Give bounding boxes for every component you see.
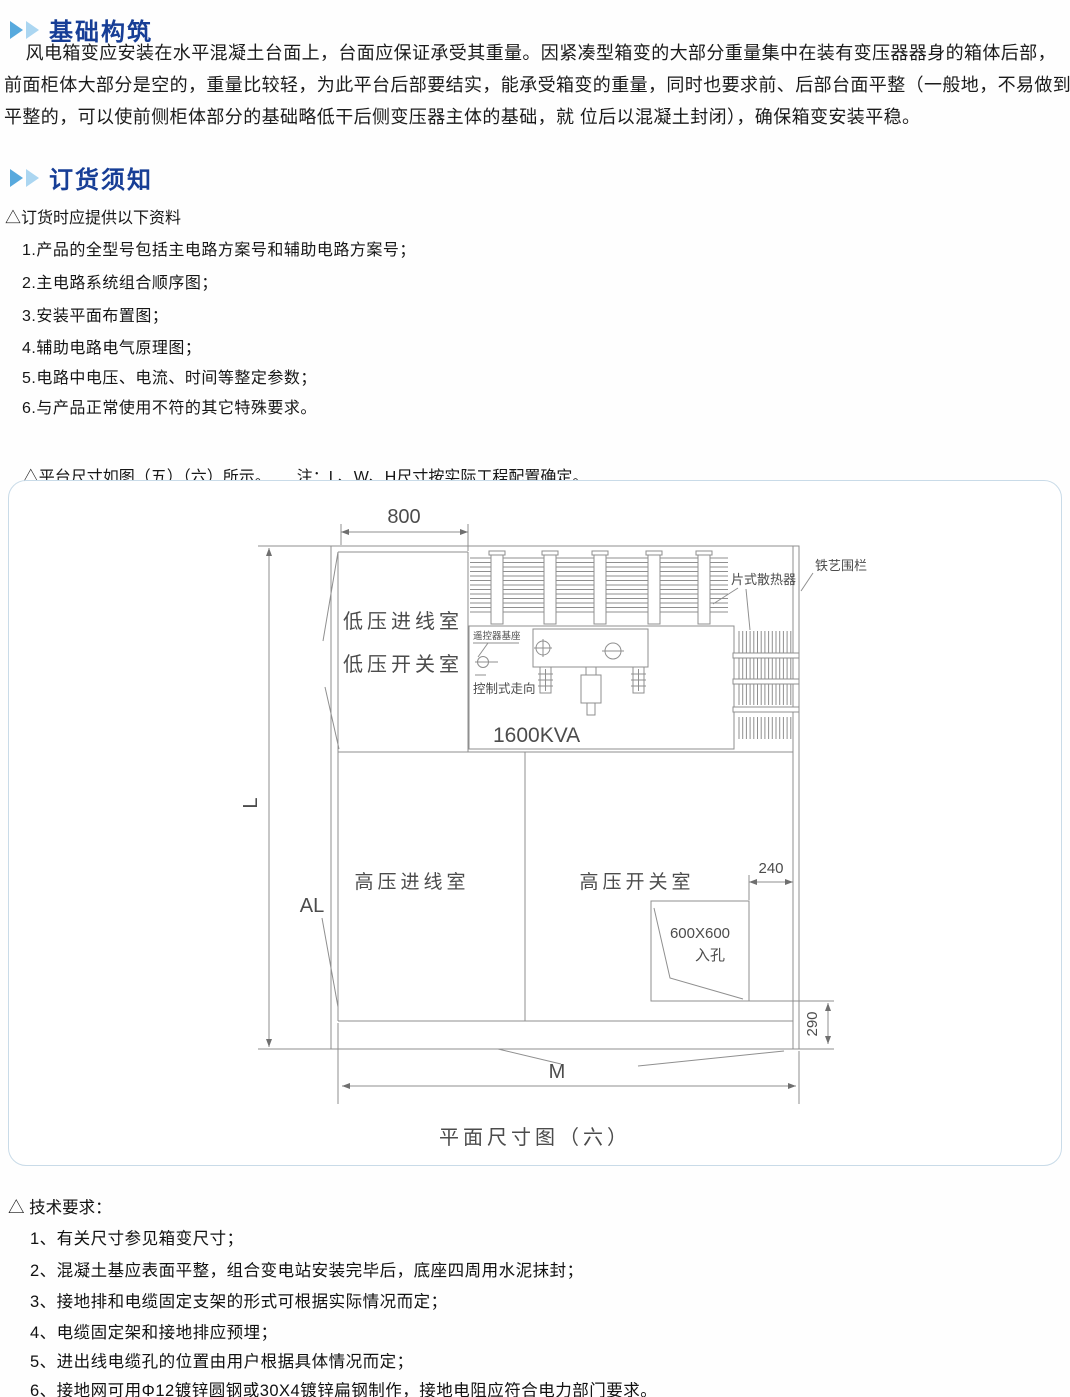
- dimension-M-label: M: [549, 1061, 566, 1083]
- fence-label: 铁艺围栏: [815, 558, 867, 573]
- room-label-lv-switch: 低压开关室: [343, 653, 463, 676]
- list-item: 5、进出线电缆孔的位置由用户根据具体情况而定；: [30, 1348, 414, 1372]
- list-item: 6.与产品正常使用不符的其它特殊要求。: [22, 394, 317, 418]
- room-label-hv-incoming: 高压进线室: [354, 871, 469, 893]
- paragraph-line: 前面柜体大部分是空的，重量比较轻，为此平台后部要结实，能承受箱变的重量，同时也要…: [4, 71, 1070, 97]
- ordering-note: △订货时应提供以下资料: [5, 204, 181, 228]
- control-direction-label: 控制式走向: [473, 681, 536, 696]
- transformer-rating-label: 1600KVA: [493, 724, 580, 747]
- terminal-details: [538, 667, 646, 715]
- manhole-size-label: 600X600: [670, 925, 730, 942]
- list-item: 4.辅助电路电气原理图；: [22, 334, 201, 358]
- list-item: 2.主电路系统组合顺序图；: [22, 269, 218, 293]
- remote-base-label: 遥控器基座: [473, 630, 521, 642]
- dimension-240-label: 240: [758, 860, 783, 877]
- dimension-290-label: 290: [804, 1011, 821, 1036]
- room-label-hv-switch: 高压开关室: [579, 871, 694, 893]
- list-item: 5.电路中电压、电流、时间等整定参数；: [22, 364, 317, 388]
- paragraph-line: 平整的，可以使前侧柜体部分的基础略低干后侧变压器主体的基础，就 位后以混凝土封闭…: [4, 103, 920, 129]
- tech-title: △ 技术要求：: [8, 1194, 112, 1218]
- list-item: 6、接地网可用Φ12镀锌圆钢或30X4镀锌扁钢制作，接地电阻应符合电力部门要求。: [30, 1377, 657, 1397]
- list-item: 3.安装平面布置图；: [22, 302, 168, 326]
- arrow-right-icon: [10, 21, 23, 39]
- dimension-AL-label: AL: [300, 895, 324, 917]
- room-label-lv-incoming: 低压进线室: [343, 610, 463, 633]
- remote-base-symbol: [473, 643, 519, 675]
- section-title: 订货须知: [49, 160, 153, 195]
- arrow-right-icon: [26, 21, 39, 39]
- figure-caption: 平面尺寸图（六）: [439, 1126, 631, 1149]
- radiator-fins-side: [733, 631, 799, 739]
- manhole-label: 入孔: [695, 947, 725, 964]
- catalog-page: 基础构筑 风电箱变应安装在水平混凝土台面上，台面应保证承受其重量。因紧凑型箱变的…: [0, 0, 1070, 1397]
- list-item: 4、电缆固定架和接地排应预埋；: [30, 1319, 278, 1343]
- section-header-ordering: 订货须知: [10, 160, 153, 195]
- arrow-right-icon: [26, 169, 39, 187]
- dimension-L-label: L: [240, 797, 262, 808]
- dimension-800-label: 800: [387, 506, 420, 528]
- figure-panel: 800 L AL 低压进线室 低压开关室 片式散热器 铁艺围栏 遥控器基座 控制…: [8, 480, 1062, 1166]
- paragraph-line: 风电箱变应安装在水平混凝土台面上，台面应保证承受其重量。因紧凑型箱变的大部分重量…: [4, 39, 1056, 65]
- list-item: 2、混凝土基应表面平整，组合变电站安装完毕后，底座四周用水泥抹封；: [30, 1257, 584, 1281]
- radiator-label: 片式散热器: [731, 572, 796, 587]
- list-item: 1.产品的全型号包括主电路方案号和辅助电路方案号；: [22, 236, 416, 260]
- list-item: 1、有关尺寸参见箱变尺寸；: [30, 1225, 244, 1249]
- radiator-pipes-top: [489, 551, 712, 624]
- plan-drawing: 800 L AL 低压进线室 低压开关室 片式散热器 铁艺围栏 遥控器基座 控制…: [9, 481, 1061, 1165]
- arrow-right-icon: [10, 169, 23, 187]
- list-item: 3、接地排和电缆固定支架的形式可根据实际情况而定；: [30, 1288, 448, 1312]
